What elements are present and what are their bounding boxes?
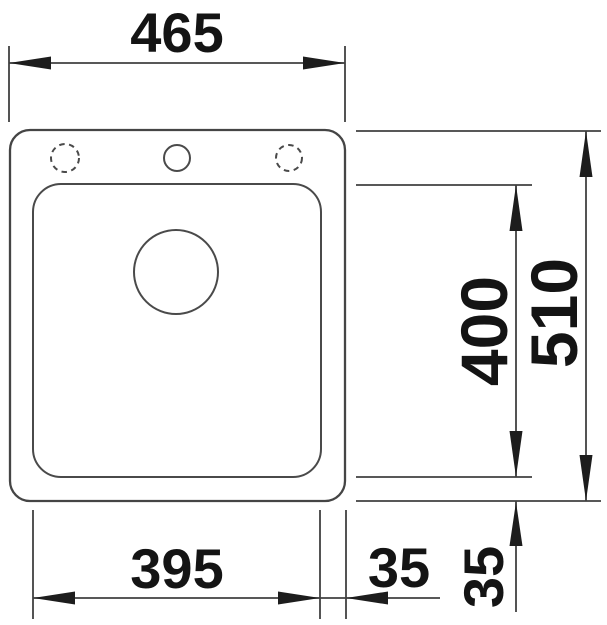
faucet-hole-center [164, 145, 190, 171]
sink-bowl-outline [33, 184, 321, 477]
arrowhead-left [9, 57, 51, 70]
technical-drawing-canvas: 465 510 400 35 [0, 0, 607, 625]
optional-tap-hole-right-dashed [276, 145, 302, 171]
dim-bowl-side-offset-label: 35 [368, 536, 430, 599]
arrowhead-left [33, 592, 75, 605]
dim-overall-depth-label: 510 [517, 258, 591, 368]
arrowhead-right [278, 592, 320, 605]
dim-bowl-bottom-offset-label: 35 [452, 546, 515, 608]
sink-dimension-drawing: 465 510 400 35 [0, 0, 607, 625]
arrowhead-down [580, 455, 593, 501]
sink-top-view [10, 130, 345, 501]
arrowhead-up [510, 185, 523, 231]
dim-bowl-width-label: 395 [130, 537, 223, 600]
arrowhead-right [303, 57, 345, 70]
dimension-overall-width: 465 [9, 1, 345, 122]
arrowhead-up [510, 502, 523, 546]
drain-hole-circle [134, 230, 218, 314]
sink-outer-outline [10, 130, 345, 501]
arrowhead-down [510, 431, 523, 477]
dim-overall-width-label: 465 [130, 1, 223, 64]
optional-tap-hole-left-dashed [51, 144, 79, 172]
dim-bowl-length-label: 400 [447, 276, 521, 386]
arrowhead-up [580, 131, 593, 177]
dimension-bottom-group: 395 35 [33, 510, 440, 619]
